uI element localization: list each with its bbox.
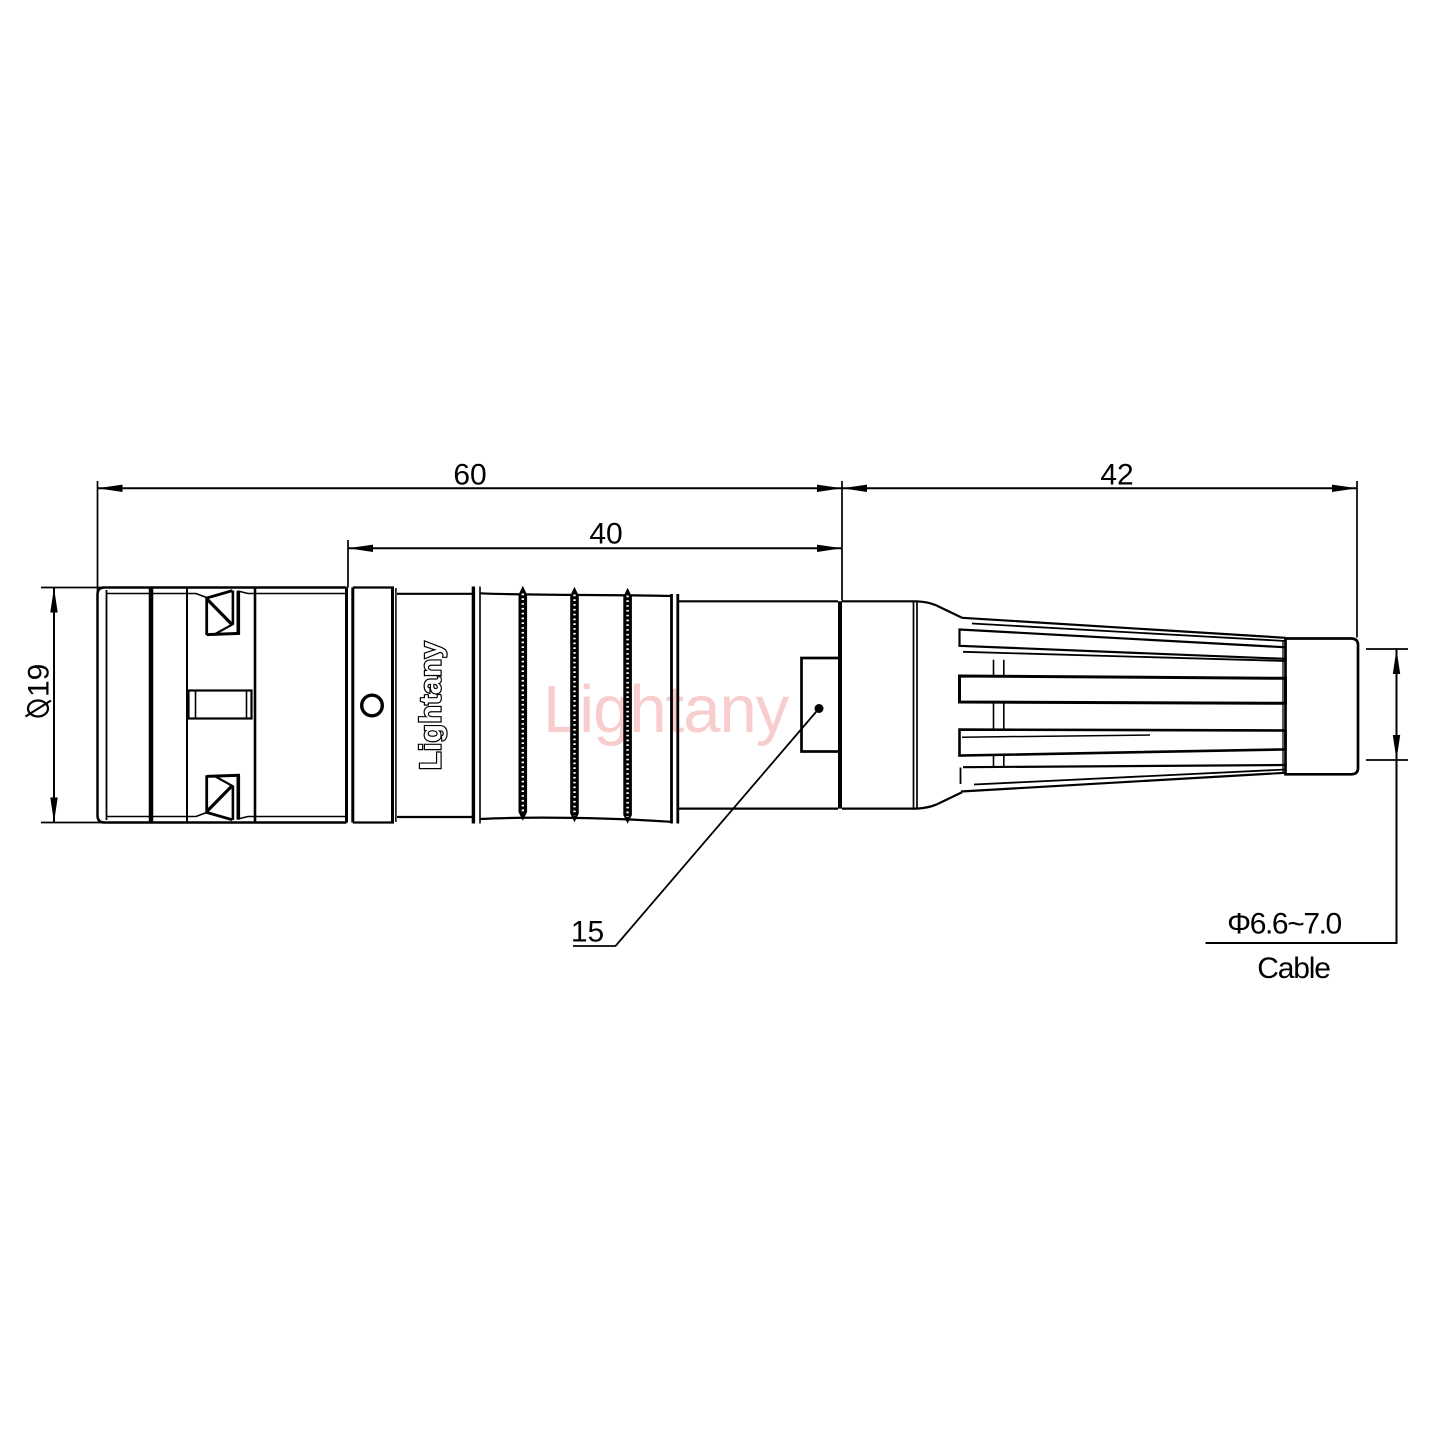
svg-text:40: 40 xyxy=(589,518,622,551)
svg-text:Cable: Cable xyxy=(1257,952,1330,985)
svg-text:Lightany: Lightany xyxy=(543,672,790,747)
svg-text:42: 42 xyxy=(1100,459,1133,492)
svg-text:Φ6.6~7.0: Φ6.6~7.0 xyxy=(1227,908,1341,941)
svg-text:60: 60 xyxy=(453,459,486,492)
svg-text:15: 15 xyxy=(571,916,604,949)
svg-text:Lightany: Lightany xyxy=(415,641,448,770)
svg-text:19: 19 xyxy=(23,664,56,697)
